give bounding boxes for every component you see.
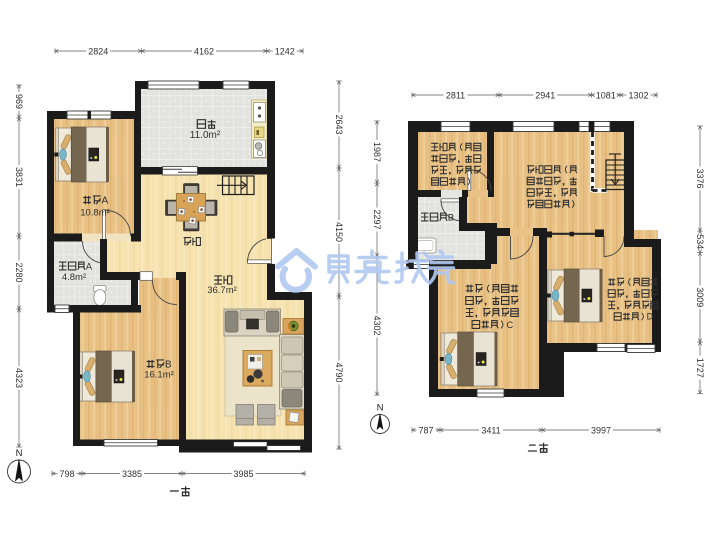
svg-text:3997: 3997: [591, 425, 611, 435]
svg-text:11.0m²: 11.0m²: [190, 130, 221, 141]
svg-text:2297: 2297: [372, 209, 382, 229]
svg-text:3009: 3009: [695, 287, 705, 307]
svg-text:534: 534: [695, 234, 705, 249]
svg-text:N: N: [377, 403, 384, 414]
svg-text:3376: 3376: [695, 168, 705, 188]
svg-text:16.1m²: 16.1m²: [144, 370, 174, 381]
svg-text:4162: 4162: [194, 46, 214, 56]
svg-text:C: C: [506, 320, 513, 331]
svg-text:2280: 2280: [14, 262, 24, 282]
svg-text:4790: 4790: [334, 362, 344, 382]
svg-text:4150: 4150: [334, 222, 344, 242]
svg-text:3385: 3385: [122, 469, 142, 479]
svg-text:798: 798: [59, 469, 74, 479]
svg-text:3831: 3831: [14, 167, 24, 187]
svg-text:969: 969: [14, 94, 24, 109]
svg-text:10.8m²: 10.8m²: [80, 208, 110, 219]
svg-text:1302: 1302: [628, 90, 648, 100]
svg-text:B: B: [448, 212, 454, 223]
svg-text:4.8m²: 4.8m²: [62, 272, 86, 283]
svg-text:3411: 3411: [481, 425, 500, 435]
svg-text:3985: 3985: [233, 469, 253, 479]
svg-text:787: 787: [418, 425, 433, 435]
svg-text:2643: 2643: [334, 114, 344, 134]
svg-text:N: N: [16, 448, 23, 459]
svg-text:2824: 2824: [88, 46, 108, 56]
svg-text:2941: 2941: [535, 90, 555, 100]
svg-text:36.7m²: 36.7m²: [207, 285, 237, 296]
svg-text:1987: 1987: [372, 142, 382, 162]
svg-text:1242: 1242: [275, 46, 295, 56]
svg-text:4323: 4323: [14, 368, 24, 388]
svg-text:A: A: [86, 261, 93, 272]
svg-text:2811: 2811: [446, 90, 465, 100]
svg-text:D: D: [647, 312, 654, 322]
svg-text:1727: 1727: [695, 358, 705, 378]
svg-text:A: A: [101, 196, 108, 207]
svg-text:1081: 1081: [596, 90, 616, 100]
svg-text:4302: 4302: [372, 315, 382, 335]
